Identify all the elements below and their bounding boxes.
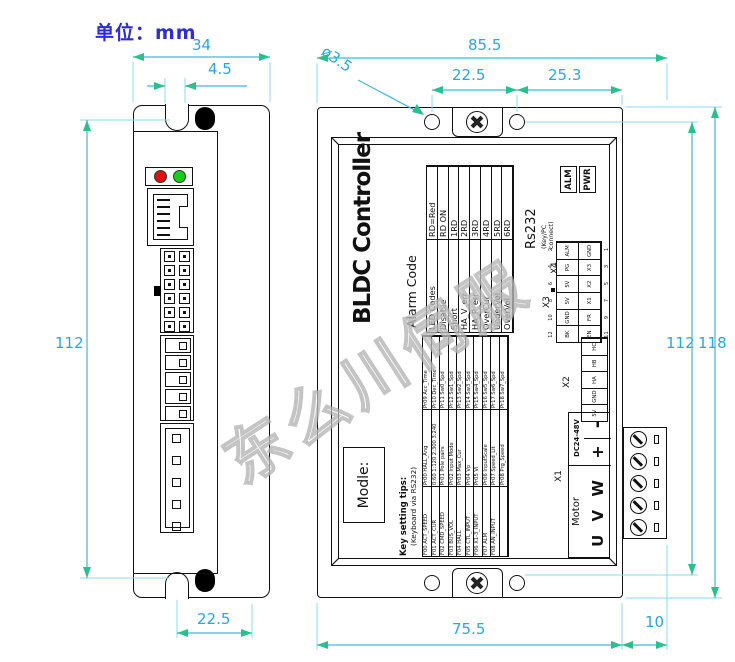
terminal-hole (172, 434, 181, 443)
connector-5pin-cell (165, 338, 191, 353)
key-cell: F08 AN_INPUT (491, 486, 500, 556)
rj45-pin (157, 234, 170, 236)
terminal-wire-slot (654, 501, 659, 510)
header-pin (179, 307, 190, 318)
pin-number: 9 (604, 309, 610, 326)
dim-front-total-height: 118 (698, 336, 727, 351)
model-box: Modle: (343, 447, 385, 523)
key-cell: Pr07 Speed_Lit (491, 409, 500, 486)
key-cell: Pr08 Prg_Speed (500, 409, 509, 486)
key-cell: Pr03 Max_Cur (457, 409, 466, 486)
power-minus: - (584, 411, 611, 438)
x1-terminal-labels: Motor DC24-48V U V W + - (568, 412, 610, 558)
terminal-hole (172, 478, 181, 487)
x3-pin1-marker (551, 288, 555, 292)
alarm-cell: 3RD (470, 166, 481, 239)
pwr-led-label: PWR (579, 166, 596, 193)
alarm-cell: 4RD (481, 166, 492, 239)
key-settings-subheading: (Keyboard via RS232) (409, 467, 418, 546)
terminal-screw (630, 431, 647, 448)
motor-pins: U V W (584, 465, 611, 557)
x3-cell: X2 (579, 275, 601, 292)
dim-front-hole-right: 25.3 (548, 68, 581, 83)
key-cell: F02 CMD_SPEED (440, 486, 449, 556)
key-cell: Pr17 Sw6_Spd (491, 336, 500, 409)
key-cell: F05 CTL_INPUT (466, 486, 475, 556)
mount-hole-top-right (509, 114, 525, 130)
connector-5pin-cell (165, 355, 191, 370)
header-pin (179, 293, 190, 304)
connector-5pin-cell (165, 406, 191, 421)
connector-5pin-cell (165, 389, 191, 404)
model-label: Modle: (356, 462, 372, 509)
dim-front-hole-height: 112 (666, 336, 695, 351)
key-cell: Pr06 InputScale (483, 409, 492, 486)
x3-pins-top: 12108642 (548, 241, 554, 343)
mount-hole-top-left (424, 114, 440, 130)
pin-number: 4 (548, 258, 554, 275)
side-body-bottom-edge (134, 573, 217, 574)
x3-connector: BKGND5V5VPGALM ENFRX1X2X3GND (556, 241, 602, 343)
mount-hole-bottom-right (509, 575, 525, 591)
header-pin (164, 307, 175, 318)
side-body-right-edge (217, 131, 218, 574)
dim-side-bottom: 22.5 (197, 612, 230, 627)
x3-cell: GND (579, 242, 601, 259)
header-pin (179, 279, 190, 290)
side-body-top-edge (134, 131, 217, 132)
key-cell: Pr05 Vi (474, 409, 483, 486)
key-cell: F06 X1-3_INPUT (474, 486, 483, 556)
alarm-header: RD=Red (427, 166, 438, 239)
motor-label: Motor (569, 465, 584, 557)
connector-5pin-cell (165, 372, 191, 387)
unit-label: 单位：mm (95, 18, 197, 45)
header-key-nub (154, 286, 161, 296)
x3-cell: FR (579, 309, 601, 326)
dim-front-hole-left: 22.5 (452, 68, 485, 83)
green-led (173, 170, 186, 183)
key-cell: F00 ACT_SPEED (423, 486, 432, 556)
key-cell: F04 HALL (457, 486, 466, 556)
alarm-cell: 1RD (449, 166, 460, 239)
x3-cell: BK (557, 325, 579, 342)
terminal-wire-slot (654, 435, 659, 444)
dim-side-slot: 4.5 (208, 62, 232, 77)
x1-label: X1 (554, 470, 564, 482)
rj45-pin (157, 220, 170, 222)
header-pin (179, 251, 190, 262)
header-pin (164, 251, 175, 262)
header-pin (179, 321, 190, 332)
red-led (154, 170, 167, 183)
technical-drawing: 单位：mm (0, 0, 735, 662)
key-cell: F01 ACT_CUR (432, 486, 441, 556)
x2-cell: HB (582, 355, 607, 372)
x3-cell: 5V (557, 275, 579, 292)
x3-cell: PG (557, 259, 579, 276)
key-cell: Pr02 Input Mode (449, 409, 458, 486)
header-pin (164, 279, 175, 290)
x3-cell: X3 (579, 259, 601, 276)
x3-cell: 5V (557, 292, 579, 309)
key-cell (500, 486, 509, 556)
x2-cell: HC (582, 338, 607, 355)
terminal-hole (172, 522, 181, 531)
pin-number: 2 (548, 241, 554, 258)
panel-title: BLDC Controller (350, 146, 376, 324)
mounting-notch-bottom (165, 572, 189, 599)
terminal-wire-slot (654, 523, 659, 532)
header-pin (179, 265, 190, 276)
dim-side-width: 34 (192, 38, 211, 53)
x3-cell: ALM (557, 242, 579, 259)
dim-front-body-width: 75.5 (452, 622, 485, 637)
terminal-hole (172, 500, 181, 509)
pin-number: 3 (604, 258, 610, 275)
dim-front-terminal: 10 (645, 615, 664, 630)
power-plus: + (584, 438, 611, 465)
x3-cell: GND (557, 309, 579, 326)
key-settings-heading: Key setting tips: (399, 477, 409, 556)
pin-number: 8 (548, 292, 554, 309)
header-pin (164, 265, 175, 276)
mounting-notch-top (165, 104, 189, 131)
terminal-screw (630, 519, 647, 536)
x3-cell: X1 (579, 292, 601, 309)
key-cell: F03 BUS_VOL (449, 486, 458, 556)
alarm-cell: 2RD (459, 166, 470, 239)
dim-hole-diameter: ø3.5 (319, 44, 355, 75)
pin-number: 12 (548, 326, 554, 343)
x3-pins-bottom: 1197531 (604, 241, 610, 343)
key-cell: Pr18 Sw7_Spd (500, 336, 509, 409)
pin-number: 1 (604, 241, 610, 258)
alm-led-label: ALM (560, 166, 577, 193)
terminal-screw (630, 453, 647, 470)
terminal-screw (630, 497, 647, 514)
dim-side-height: 112 (55, 336, 84, 351)
key-cell: Pr00 HALL_Ang (423, 409, 432, 486)
key-cell: 0:60 1:120 2:300 3:240 (432, 409, 441, 486)
pin-number: 7 (604, 292, 610, 309)
rj45-pin (157, 206, 170, 208)
x2-cell: GND (582, 388, 607, 405)
alarm-cell: 6RD (502, 166, 513, 239)
x2-cell: HA (582, 371, 607, 388)
key-cell: Pr01 Pole pairs (440, 409, 449, 486)
x2-connector: 5VGNDHAHBHC (581, 337, 608, 422)
mounting-slot-top (195, 107, 215, 130)
alarm-cell: RD ON (438, 166, 449, 239)
rj45-latch (179, 206, 188, 228)
rj45-pin (157, 213, 170, 215)
key-cell: F07 ALM (483, 486, 492, 556)
power-label: DC24-48V (569, 411, 584, 465)
x2-label: X2 (562, 376, 572, 388)
header-pin (164, 321, 175, 332)
key-cell: Pr04 Vp (466, 409, 475, 486)
header-pin (164, 293, 175, 304)
alarm-cell: 5RD (492, 166, 503, 239)
terminal-screw (630, 475, 647, 492)
terminal-wire-slot (654, 479, 659, 488)
mount-hole-bottom-left (424, 575, 440, 591)
rs232-title: Rs232 (524, 208, 539, 249)
rj45-pin (157, 199, 170, 201)
terminal-wire-slot (654, 457, 659, 466)
pin-number: 5 (604, 275, 610, 292)
rj45-pin (157, 227, 170, 229)
dim-front-total-width: 85.5 (468, 38, 501, 53)
terminal-hole (172, 456, 181, 465)
pin-number: 10 (548, 309, 554, 326)
